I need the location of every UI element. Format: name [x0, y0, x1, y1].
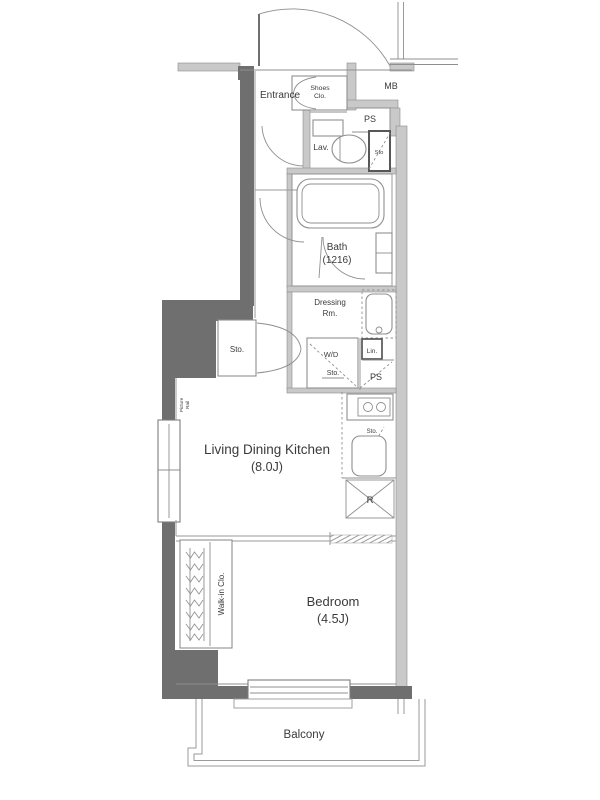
- bathtub-icon: [297, 179, 384, 228]
- bedroom-label: Bedroom: [307, 594, 360, 609]
- shoes-closet-label: Shoes: [310, 85, 330, 92]
- washer-dryer-storage-label: Sto.: [327, 370, 340, 377]
- pipe-space-lower-label: PS: [370, 372, 382, 382]
- refrigerator-label: R: [367, 495, 374, 506]
- washer-dryer-label: W/D: [324, 350, 339, 359]
- bath-size-label: (1216): [323, 255, 352, 266]
- linen-label: Lin.: [367, 348, 378, 355]
- meter-box-label: MB: [384, 81, 398, 91]
- shoes-closet-label2: Clo.: [314, 93, 326, 100]
- bedroom-window: [234, 680, 352, 708]
- hall-storage-label: Sto.: [230, 345, 244, 354]
- washer-dryer-space: [307, 338, 358, 388]
- pipe-space-upper-label: PS: [364, 114, 376, 124]
- picture-rail-label2: Rail: [185, 401, 190, 409]
- kitchen-storage-label: Sto.: [367, 429, 378, 435]
- kitchen-sink: [352, 436, 386, 476]
- washbasin-icon: [366, 294, 392, 334]
- living-window: [158, 420, 180, 522]
- floor-plan-page: Entrance Shoes Clo. MB PS Lav. Sto Bath …: [0, 0, 600, 800]
- living-size-label: (8.0J): [251, 460, 283, 474]
- bath-label: Bath: [327, 242, 348, 253]
- sliding-opening-hatch: [330, 535, 392, 543]
- lav-counter: [313, 120, 343, 136]
- balcony-label: Balcony: [284, 729, 325, 741]
- dressing-room-label2: Rm.: [323, 309, 338, 318]
- floor-plan: Entrance Shoes Clo. MB PS Lav. Sto Bath …: [0, 0, 600, 800]
- picture-rail-label: Picture: [179, 397, 184, 412]
- living-label: Living Dining Kitchen: [204, 442, 330, 457]
- toilet-storage-label: Sto: [375, 150, 384, 156]
- walk-in-closet-label: Walk-in Clo.: [217, 573, 226, 616]
- entrance-label: Entrance: [260, 90, 300, 101]
- dressing-room-label: Dressing: [314, 298, 346, 307]
- bedroom-size-label: (4.5J): [317, 612, 349, 626]
- lavatory-label: Lav.: [313, 142, 328, 152]
- toilet-icon: [332, 135, 366, 163]
